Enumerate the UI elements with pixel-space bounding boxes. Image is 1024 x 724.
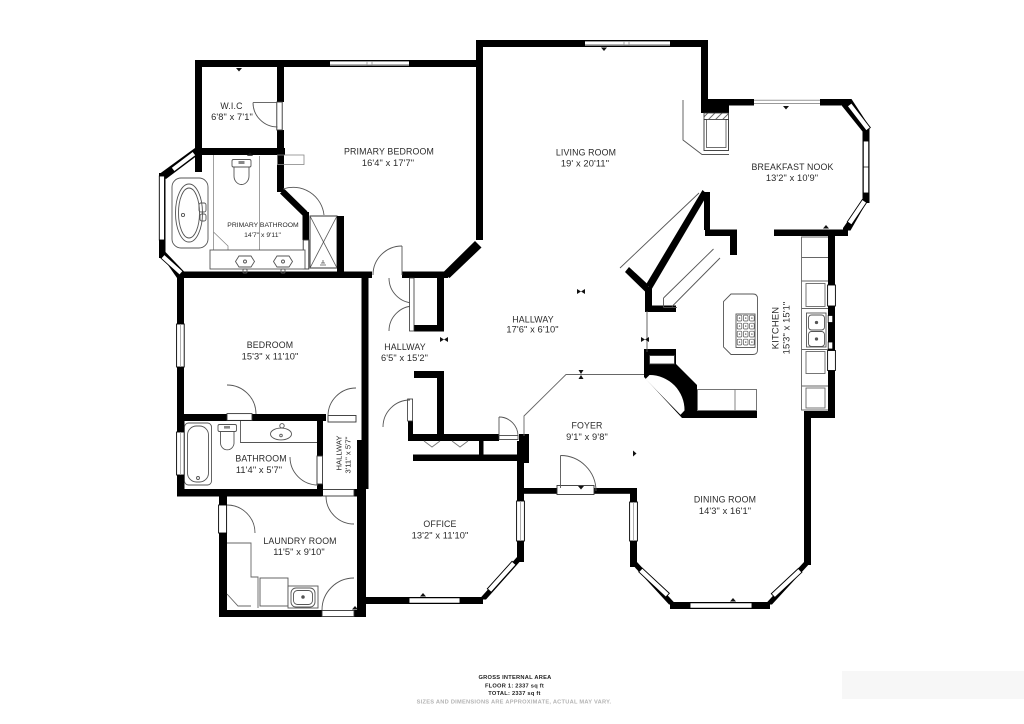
svg-text:9'1" x 9'8": 9'1" x 9'8": [566, 432, 608, 442]
svg-text:FOYER: FOYER: [571, 421, 602, 431]
svg-text:13'2" x 10'9": 13'2" x 10'9": [766, 173, 818, 183]
svg-text:LIVING ROOM: LIVING ROOM: [556, 147, 616, 157]
svg-text:HALLWAY: HALLWAY: [512, 315, 553, 325]
svg-text:PRIMARY BATHROOM: PRIMARY BATHROOM: [227, 222, 299, 229]
svg-text:FLOOR 1: 2337 sq ft: FLOOR 1: 2337 sq ft: [485, 683, 544, 689]
svg-text:6'8" x 7'1": 6'8" x 7'1": [211, 112, 253, 122]
svg-text:16'4" x 17'7": 16'4" x 17'7": [362, 158, 414, 168]
svg-text:19' x 20'11": 19' x 20'11": [561, 159, 609, 169]
svg-text:3'11" x 5'7": 3'11" x 5'7": [344, 436, 353, 473]
svg-text:13'2" x 11'10": 13'2" x 11'10": [412, 531, 469, 541]
svg-text:BREAKFAST NOOK: BREAKFAST NOOK: [751, 162, 833, 172]
svg-text:11'4" x 5'7": 11'4" x 5'7": [236, 465, 282, 475]
svg-text:KITCHEN: KITCHEN: [770, 307, 781, 350]
svg-text:TOTAL: 2337 sq ft: TOTAL: 2337 sq ft: [488, 691, 540, 697]
svg-text:15'3" x 11'10": 15'3" x 11'10": [242, 351, 299, 361]
svg-text:HALLWAY: HALLWAY: [335, 436, 344, 471]
svg-text:DINING ROOM: DINING ROOM: [694, 495, 756, 505]
svg-text:14'3" x 16'1": 14'3" x 16'1": [699, 506, 751, 516]
svg-text:SIZES AND DIMENSIONS ARE APPRO: SIZES AND DIMENSIONS ARE APPROXIMATE, AC…: [417, 700, 612, 706]
svg-text:11'5" x 9'10": 11'5" x 9'10": [273, 547, 325, 557]
svg-text:BATHROOM: BATHROOM: [235, 454, 286, 464]
svg-text:17'6" x 6'10": 17'6" x 6'10": [506, 325, 558, 335]
svg-text:BEDROOM: BEDROOM: [247, 340, 294, 350]
svg-text:OFFICE: OFFICE: [423, 519, 456, 529]
svg-text:14'7" x 9'11": 14'7" x 9'11": [244, 232, 281, 239]
svg-text:6'5" x 15'2": 6'5" x 15'2": [381, 353, 428, 363]
svg-text:15'3" x 15'1": 15'3" x 15'1": [781, 302, 792, 355]
svg-text:W.I.C: W.I.C: [220, 101, 243, 111]
svg-text:HALLWAY: HALLWAY: [384, 342, 425, 352]
svg-text:GROSS INTERNAL AREA: GROSS INTERNAL AREA: [478, 675, 551, 681]
svg-text:LAUNDRY ROOM: LAUNDRY ROOM: [263, 536, 336, 546]
svg-text:PRIMARY BEDROOM: PRIMARY BEDROOM: [344, 147, 434, 157]
